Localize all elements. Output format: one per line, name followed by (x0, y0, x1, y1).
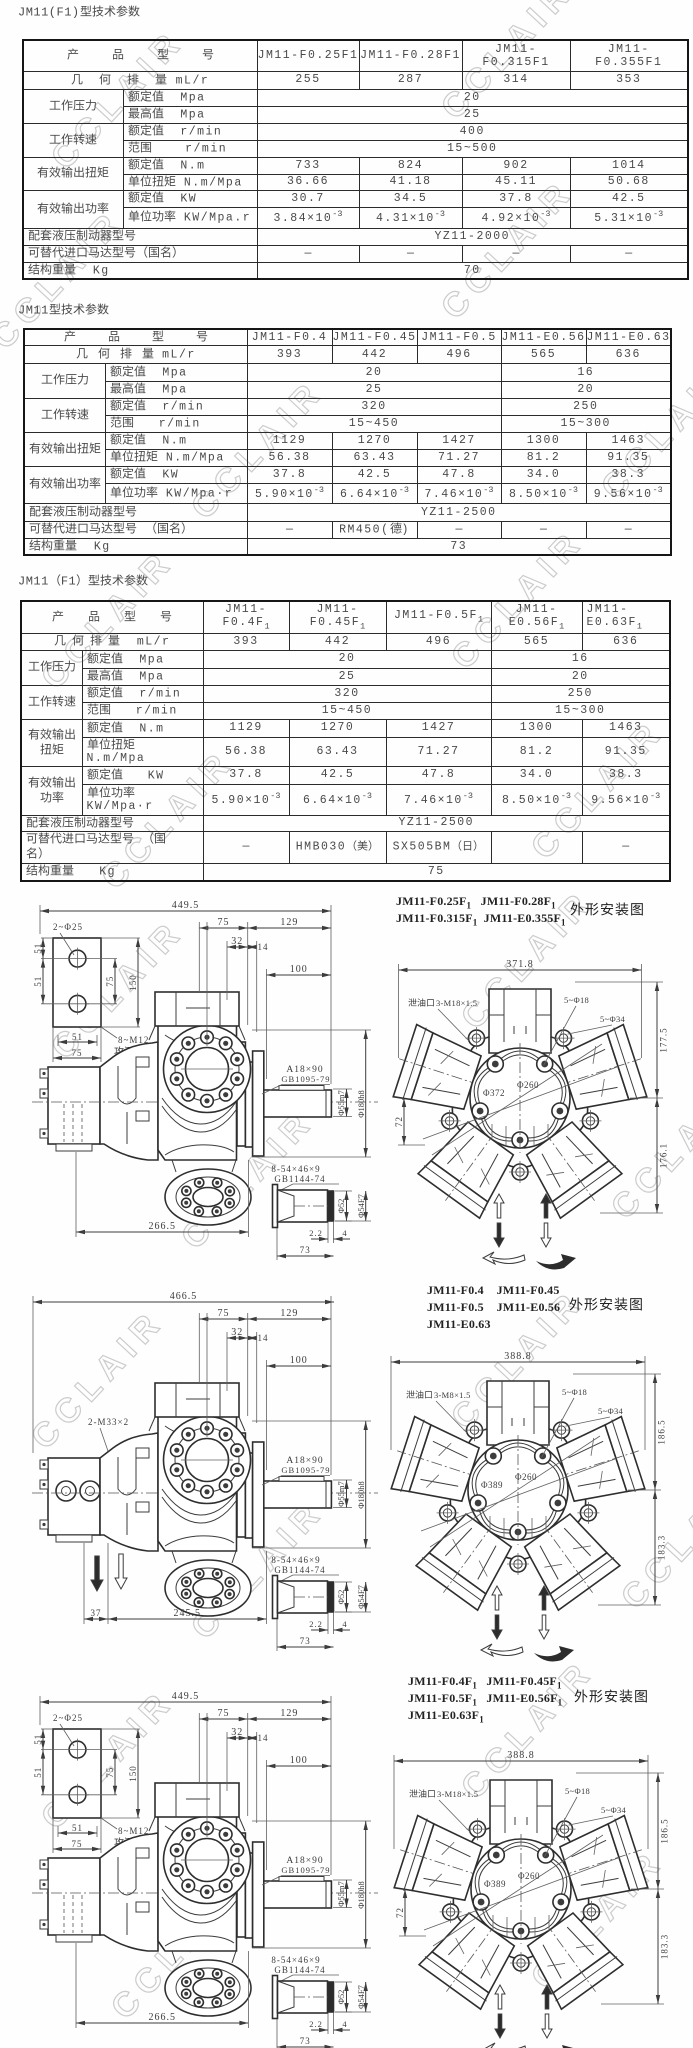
svg-text:2.2: 2.2 (309, 2019, 323, 2029)
svg-text:186.5: 186.5 (657, 1419, 667, 1444)
svg-text:2-M33×2: 2-M33×2 (88, 1417, 129, 1427)
svg-text:GB1095-79: GB1095-79 (281, 1074, 330, 1084)
svg-text:129: 129 (280, 917, 298, 928)
svg-text:Φ260: Φ260 (518, 1871, 540, 1881)
svg-text:51: 51 (33, 943, 43, 954)
svg-text:32: 32 (231, 1727, 243, 1738)
svg-text:4: 4 (342, 1619, 347, 1629)
svg-text:72: 72 (394, 1116, 404, 1127)
svg-text:Φ260: Φ260 (515, 1472, 537, 1482)
svg-text:73: 73 (300, 2036, 311, 2046)
svg-text:2.2: 2.2 (309, 1228, 323, 1238)
svg-text:5~Φ18: 5~Φ18 (565, 1786, 590, 1796)
svg-text:3-M8×1.5: 3-M8×1.5 (434, 1390, 471, 1400)
svg-text:8-54×46×9: 8-54×46×9 (271, 1555, 320, 1565)
svg-text:129: 129 (280, 1308, 298, 1319)
svg-text:Φ389: Φ389 (481, 1480, 503, 1490)
svg-text:Φ52: Φ52 (336, 1590, 346, 1605)
svg-text:Φ260: Φ260 (517, 1080, 539, 1090)
svg-text:GB1144-74: GB1144-74 (274, 1565, 325, 1575)
svg-text:51: 51 (33, 1767, 43, 1778)
svg-text:2~Φ25: 2~Φ25 (53, 922, 83, 932)
svg-text:75: 75 (105, 1767, 115, 1778)
svg-text:150: 150 (128, 1765, 138, 1782)
svg-text:73: 73 (300, 1245, 311, 1255)
svg-text:8-54×46×9: 8-54×46×9 (271, 1955, 320, 1965)
svg-text:51: 51 (33, 976, 43, 987)
svg-text:388.8: 388.8 (507, 1750, 535, 1761)
svg-text:371.8: 371.8 (506, 959, 534, 970)
svg-text:5~Φ18: 5~Φ18 (562, 1387, 587, 1397)
svg-text:75: 75 (72, 1048, 83, 1058)
svg-text:37: 37 (91, 1608, 102, 1618)
svg-text:32: 32 (231, 1327, 243, 1338)
svg-text:14: 14 (258, 942, 269, 952)
svg-text:GB1095-79: GB1095-79 (281, 1865, 330, 1875)
svg-text:5~Φ34: 5~Φ34 (600, 1014, 626, 1024)
svg-text:266.5: 266.5 (148, 1221, 176, 1232)
svg-text:5~Φ34: 5~Φ34 (601, 1805, 627, 1815)
svg-text:3-M18×1.5: 3-M18×1.5 (436, 998, 477, 1008)
svg-text:75: 75 (72, 1839, 83, 1849)
svg-text:73: 73 (300, 1636, 311, 1646)
svg-text:3-M18×1.5: 3-M18×1.5 (437, 1789, 478, 1799)
svg-text:388.8: 388.8 (504, 1351, 532, 1362)
svg-text:100: 100 (290, 1755, 308, 1766)
svg-text:Φ54F7: Φ54F7 (356, 1585, 366, 1609)
svg-text:4: 4 (342, 1228, 347, 1238)
svg-text:75: 75 (218, 1708, 230, 1719)
svg-text:75: 75 (218, 1308, 230, 1319)
svg-text:183.3: 183.3 (660, 1934, 670, 1959)
svg-text:449.5: 449.5 (172, 900, 200, 911)
svg-text:5~Φ18: 5~Φ18 (564, 995, 589, 1005)
svg-text:466.5: 466.5 (170, 1291, 198, 1302)
svg-text:Φ55m7: Φ55m7 (336, 1881, 346, 1907)
svg-text:183.3: 183.3 (657, 1535, 667, 1560)
svg-text:75: 75 (218, 917, 230, 928)
svg-text:129: 129 (280, 1708, 298, 1719)
svg-text:2~Φ25: 2~Φ25 (53, 1713, 83, 1723)
svg-text:32: 32 (231, 936, 243, 947)
svg-text:Φ180h8: Φ180h8 (356, 1881, 366, 1908)
svg-text:14: 14 (258, 1733, 269, 1743)
svg-text:150: 150 (128, 974, 138, 991)
svg-text:266.5: 266.5 (148, 2012, 176, 2023)
svg-text:51: 51 (33, 1734, 43, 1745)
svg-text:5~Φ34: 5~Φ34 (598, 1406, 624, 1416)
svg-text:14: 14 (258, 1333, 269, 1343)
svg-text:72: 72 (395, 1907, 405, 1918)
svg-text:8-54×46×9: 8-54×46×9 (271, 1164, 320, 1174)
svg-text:Φ52: Φ52 (336, 1990, 346, 2005)
svg-text:100: 100 (290, 1355, 308, 1366)
svg-text:51: 51 (72, 1032, 83, 1042)
svg-text:2.2: 2.2 (309, 1619, 323, 1629)
svg-text:Φ372: Φ372 (483, 1088, 505, 1098)
svg-text:Φ180h8: Φ180h8 (356, 1481, 366, 1508)
svg-text:Φ54F7: Φ54F7 (356, 1194, 366, 1218)
svg-text:Φ54F7: Φ54F7 (356, 1985, 366, 2009)
svg-text:100: 100 (290, 964, 308, 975)
svg-text:GB1095-79: GB1095-79 (281, 1465, 330, 1475)
svg-text:Φ180h8: Φ180h8 (356, 1090, 366, 1117)
svg-text:245.5: 245.5 (173, 1608, 201, 1619)
svg-text:176.1: 176.1 (659, 1143, 669, 1168)
svg-text:Φ55m7: Φ55m7 (336, 1090, 346, 1116)
svg-text:4: 4 (342, 2019, 347, 2029)
svg-text:51: 51 (72, 1823, 83, 1833)
svg-text:449.5: 449.5 (172, 1691, 200, 1702)
svg-text:GB1144-74: GB1144-74 (274, 1174, 325, 1184)
svg-text:Φ55m7: Φ55m7 (336, 1481, 346, 1507)
svg-text:Φ389: Φ389 (484, 1879, 506, 1889)
svg-text:177.5: 177.5 (659, 1027, 669, 1052)
svg-text:75: 75 (105, 976, 115, 987)
svg-text:186.5: 186.5 (660, 1818, 670, 1843)
svg-text:GB1144-74: GB1144-74 (274, 1965, 325, 1975)
svg-text:Φ52: Φ52 (336, 1199, 346, 1214)
